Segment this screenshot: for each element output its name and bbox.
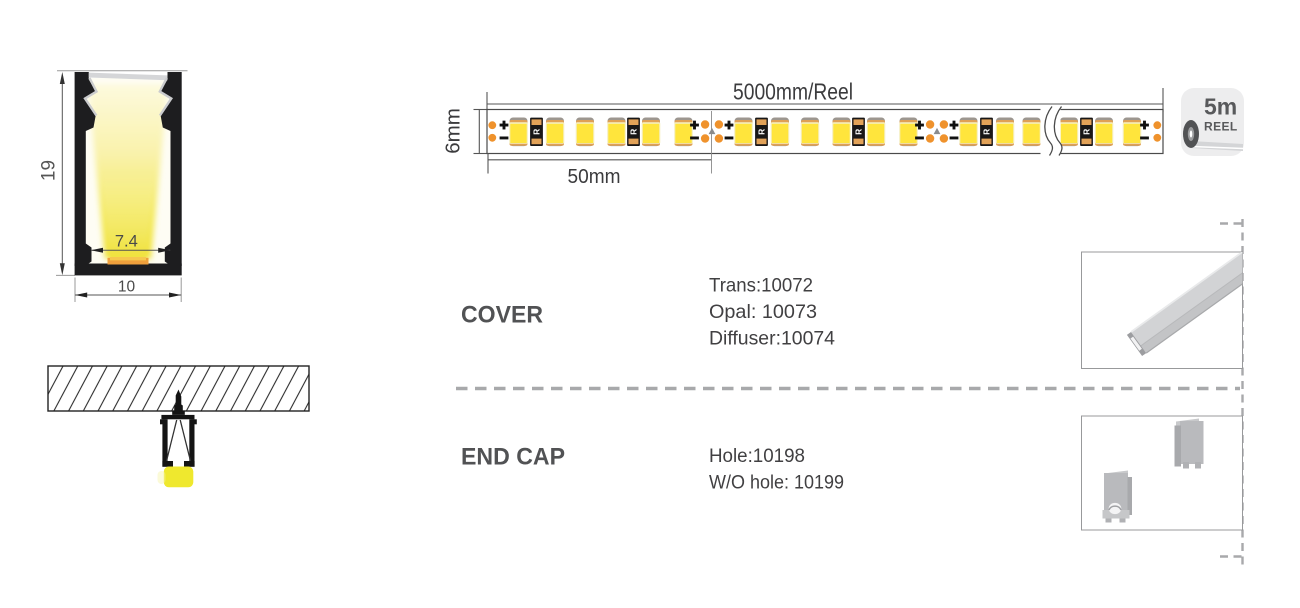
svg-text:Hole:10198: Hole:10198 bbox=[709, 445, 805, 467]
svg-text:REEL: REEL bbox=[1204, 120, 1238, 134]
svg-text:5m: 5m bbox=[1204, 94, 1237, 120]
svg-text:W/O hole: 10199: W/O hole: 10199 bbox=[709, 472, 844, 494]
svg-text:COVER: COVER bbox=[461, 302, 543, 329]
svg-text:Opal: 10073: Opal: 10073 bbox=[709, 301, 817, 323]
svg-text:7.4: 7.4 bbox=[115, 233, 138, 251]
svg-text:19: 19 bbox=[39, 160, 60, 181]
svg-text:Diffuser:10074: Diffuser:10074 bbox=[709, 328, 835, 350]
svg-text:END CAP: END CAP bbox=[461, 444, 565, 471]
svg-text:50mm: 50mm bbox=[568, 166, 621, 188]
svg-text:10: 10 bbox=[118, 279, 136, 296]
svg-text:Trans:10072: Trans:10072 bbox=[709, 275, 813, 297]
svg-text:6mm: 6mm bbox=[442, 108, 465, 154]
svg-text:5000mm/Reel: 5000mm/Reel bbox=[733, 79, 853, 105]
